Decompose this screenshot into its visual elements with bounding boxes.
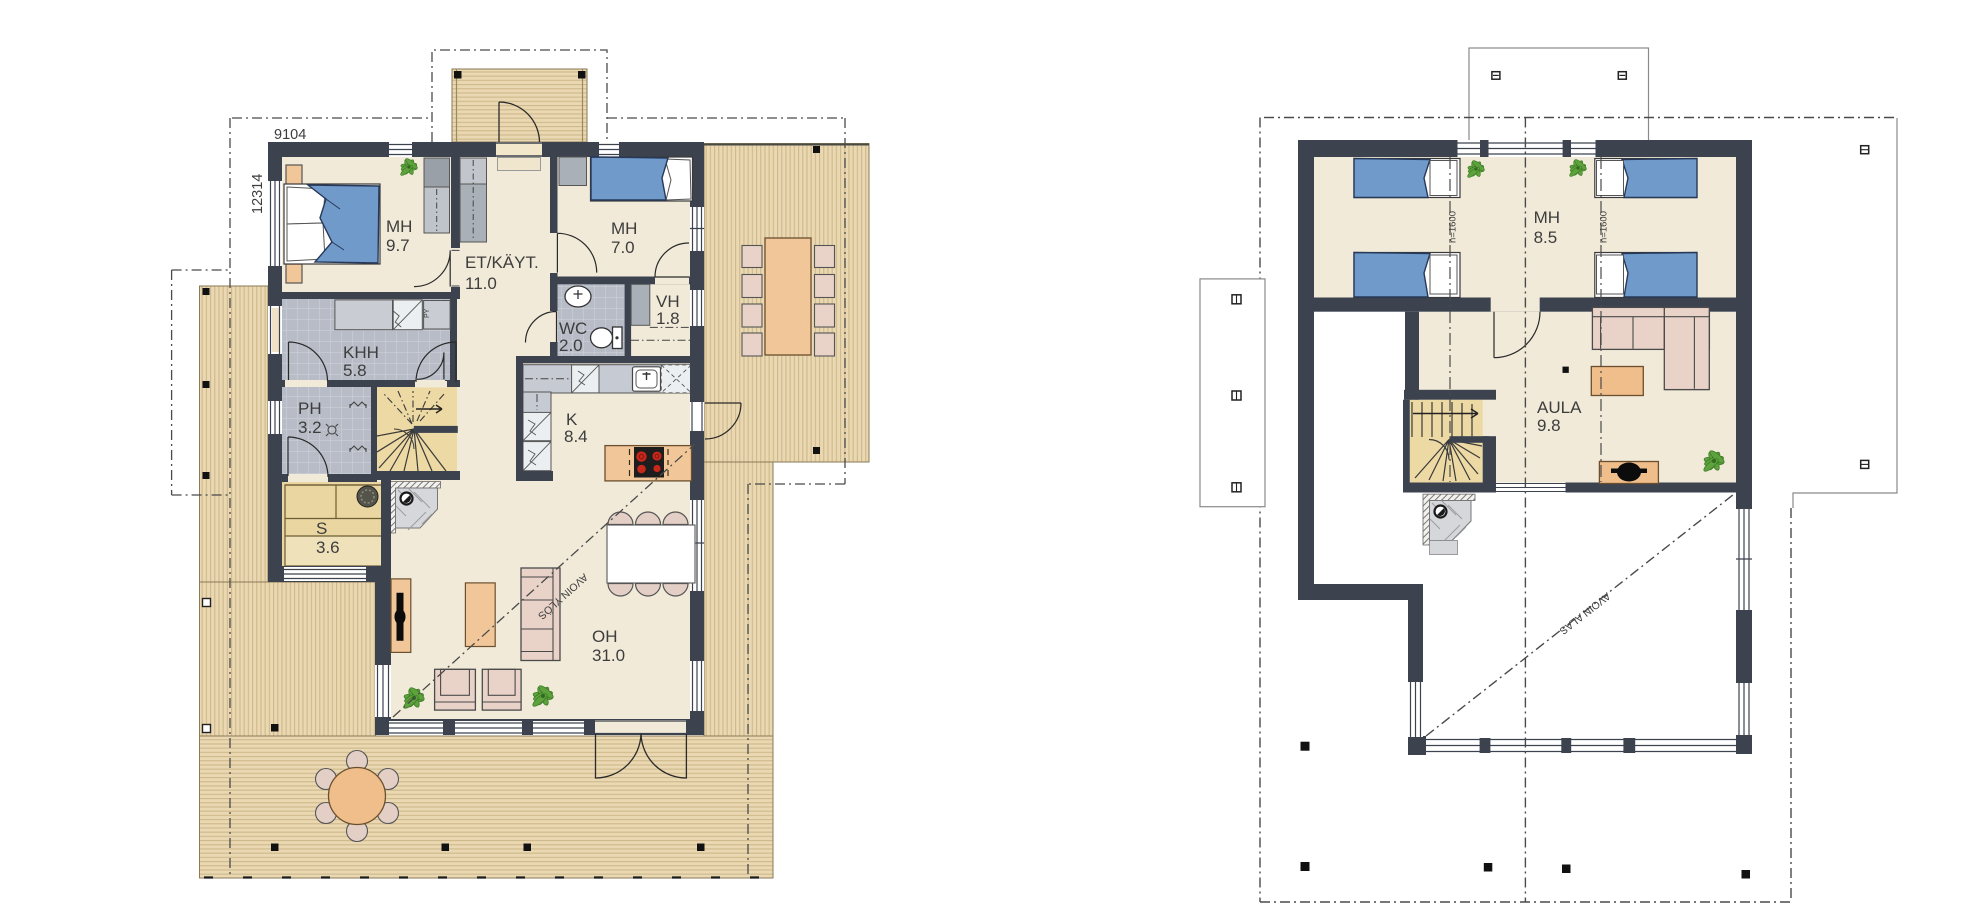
svg-text:h=1600: h=1600 — [1448, 211, 1459, 243]
svg-text:KHH: KHH — [343, 343, 379, 362]
svg-text:11.0: 11.0 — [465, 274, 497, 293]
svg-text:8.5: 8.5 — [1534, 228, 1558, 247]
svg-text:AULA: AULA — [1537, 398, 1582, 417]
svg-text:S: S — [316, 519, 327, 538]
svg-text:MH: MH — [1534, 208, 1560, 227]
svg-text:2.0: 2.0 — [559, 336, 583, 355]
svg-text:9.7: 9.7 — [386, 236, 410, 255]
svg-text:9.8: 9.8 — [1537, 416, 1561, 435]
svg-text:PH: PH — [298, 399, 322, 418]
svg-text:12314: 12314 — [250, 174, 266, 214]
svg-text:7.0: 7.0 — [611, 238, 635, 257]
svg-text:9104: 9104 — [274, 127, 306, 143]
svg-text:3.2: 3.2 — [298, 418, 322, 437]
svg-text:MH: MH — [386, 217, 412, 236]
svg-text:1.8: 1.8 — [656, 309, 680, 328]
svg-text:OH: OH — [592, 627, 618, 646]
svg-text:MH: MH — [611, 219, 637, 238]
svg-text:8.4: 8.4 — [564, 427, 588, 446]
svg-text:5.8: 5.8 — [343, 361, 367, 380]
svg-text:h=1600: h=1600 — [1599, 211, 1610, 243]
svg-text:PY: PY — [424, 308, 431, 318]
svg-text:31.0: 31.0 — [592, 646, 625, 665]
svg-text:3.6: 3.6 — [316, 538, 340, 557]
svg-text:ET/KÄYT.: ET/KÄYT. — [465, 253, 539, 272]
